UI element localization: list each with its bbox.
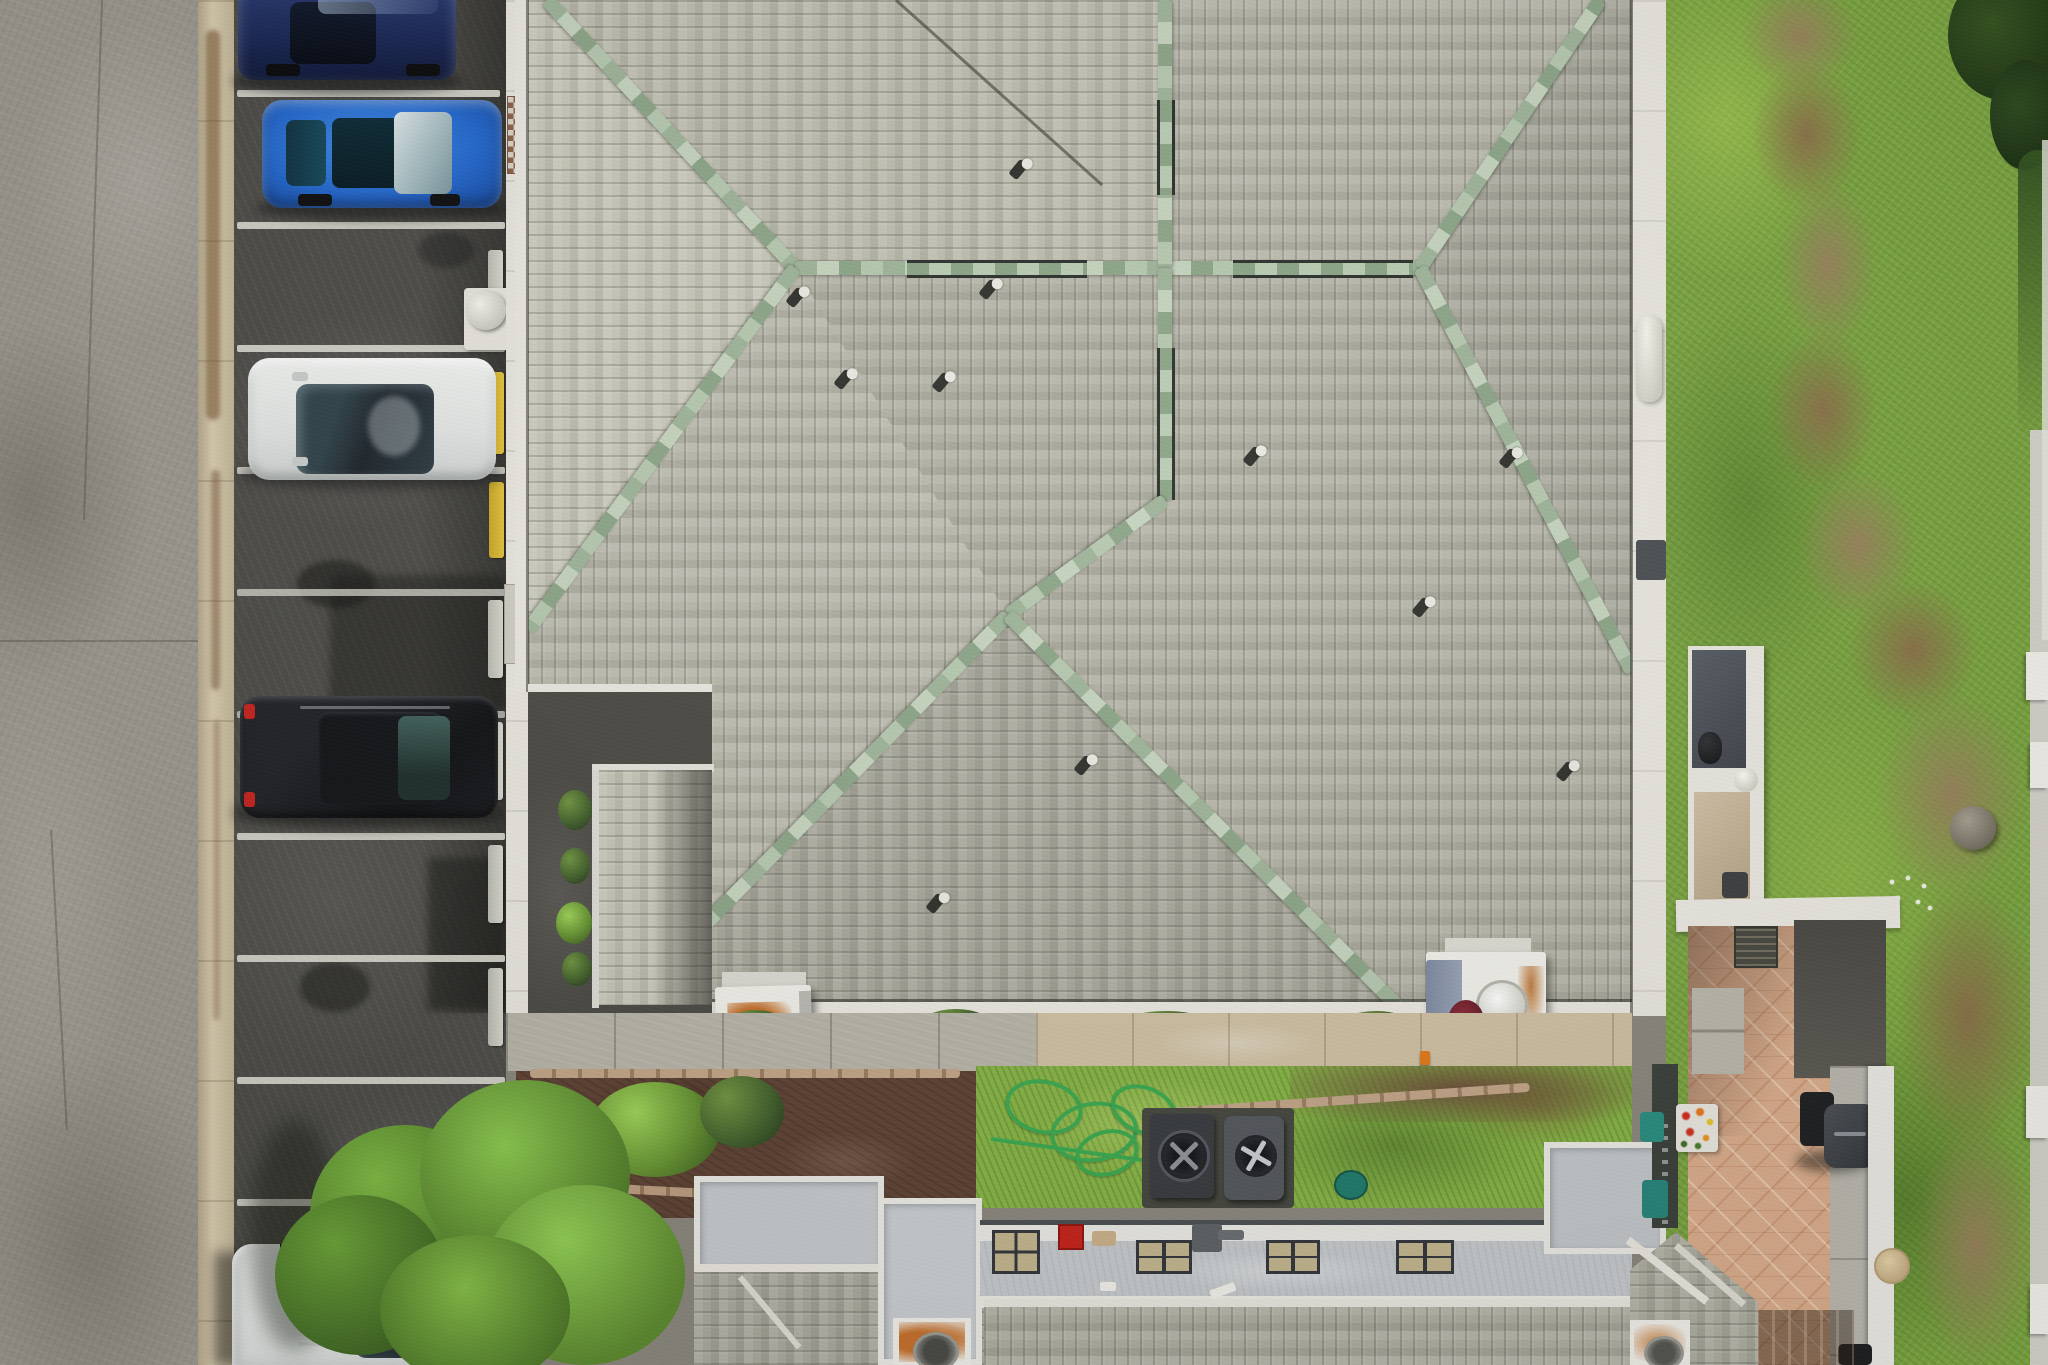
shrub — [560, 848, 590, 884]
car-windshield — [394, 112, 452, 194]
trash-bag — [1698, 732, 1722, 764]
dirt-path — [1778, 180, 1878, 350]
ridge-cap-dark-segment — [1233, 260, 1413, 278]
wheel-stop-yellow — [489, 482, 504, 558]
balcony-grill — [1722, 872, 1748, 898]
curb-stain — [211, 470, 220, 690]
dirt-path — [1768, 330, 1878, 490]
patio-railing — [1868, 1066, 1894, 1365]
car-white — [248, 358, 496, 480]
balcony-block — [1688, 646, 1764, 906]
neighbor-ledge — [2026, 1086, 2048, 1138]
asphalt-stain — [300, 962, 370, 1012]
tree-canopy — [270, 1075, 700, 1365]
shaded-wall-band — [1794, 920, 1886, 1078]
car-mirror — [292, 372, 308, 381]
grill-handle — [1834, 1132, 1866, 1136]
neighbor-trim — [2042, 140, 2048, 640]
tan-roof-vent — [1092, 1231, 1116, 1246]
skylight — [1136, 1240, 1192, 1274]
red-rooftop-box — [1058, 1224, 1084, 1250]
ridge-cap-dark-segment — [1157, 100, 1175, 195]
wing-roof-shadow — [652, 770, 712, 1005]
vertical-ridge-top — [1158, 0, 1172, 268]
car-black — [240, 696, 498, 818]
pitched-roof-ridge-board — [984, 1299, 1632, 1307]
left-gutter-line — [526, 0, 529, 692]
car-wheel — [406, 64, 440, 76]
garden-bush — [700, 1076, 784, 1148]
pitched-roof-bottom — [984, 1306, 1632, 1365]
car-taillight — [244, 792, 255, 807]
skylight — [992, 1230, 1040, 1274]
neighbor-ledge — [2030, 742, 2048, 788]
car-wheel — [298, 194, 332, 206]
bollard — [466, 290, 506, 330]
sidewalk — [506, 1013, 1036, 1071]
car-windshield — [398, 716, 450, 800]
drain-grate — [1734, 926, 1778, 968]
pavement-seam — [0, 640, 198, 642]
right-gutter-line — [1630, 0, 1633, 1016]
dirt-patch — [1898, 880, 2038, 1150]
curb-stain — [206, 30, 220, 420]
neighbor-ledge — [2030, 1284, 2048, 1334]
ac-fan — [1158, 1130, 1210, 1182]
teal-bin — [1642, 1180, 1668, 1218]
car-taillight — [244, 704, 255, 719]
dirt-patch — [1878, 690, 2028, 900]
car-navy — [238, 0, 456, 80]
shrub — [556, 902, 592, 944]
aerial-photo-stage — [0, 0, 2048, 1365]
concrete-slabs — [1692, 988, 1744, 1074]
stall-line — [237, 222, 505, 229]
dirt-patch — [1916, 1120, 2036, 1365]
asphalt-stain — [418, 232, 474, 268]
wing-fascia-left — [592, 770, 599, 1008]
roof-duct-arm — [1218, 1230, 1244, 1240]
curb-stain — [213, 720, 220, 1020]
balcony-pillar — [1734, 768, 1758, 792]
balcony-opening-tan — [1694, 792, 1750, 900]
main-ridge — [795, 261, 1420, 275]
wheel-stop — [488, 600, 503, 678]
statue — [1636, 316, 1662, 402]
chimney-bottom — [893, 1318, 971, 1365]
neighbor-ledge — [2026, 652, 2048, 700]
flower-planter — [1676, 1104, 1718, 1152]
wheel-stop — [488, 845, 503, 923]
stall-line — [237, 955, 505, 962]
wheel-stop — [488, 968, 503, 1046]
car-roof-glint — [300, 706, 450, 709]
tan-walkway — [1036, 1013, 1632, 1073]
chimney-flue — [1644, 1336, 1684, 1365]
concrete-road-strip — [0, 0, 200, 1365]
round-table — [1874, 1248, 1910, 1284]
asphalt-stain — [297, 560, 375, 608]
car-wheel — [266, 64, 300, 76]
flat-roof-section — [694, 1176, 884, 1272]
railing-shadow — [1756, 1310, 1854, 1365]
car-sunroof — [332, 118, 400, 188]
vertical-ridge-mid — [1158, 268, 1172, 500]
ac-unit — [1224, 1116, 1284, 1200]
white-roof-debris — [1100, 1282, 1116, 1291]
right-walkway-strip — [1632, 0, 1666, 1016]
balcony-opening — [1692, 650, 1746, 768]
notch-eave-fascia — [528, 684, 712, 692]
chimney-corner — [1630, 1320, 1690, 1365]
ridge-cap-dark-segment — [907, 260, 1087, 278]
utility-box — [1636, 540, 1666, 580]
car-blue — [262, 100, 502, 208]
car-window-reflection — [368, 396, 420, 456]
shrub — [558, 790, 592, 830]
ridge-cap-dark-segment — [1157, 348, 1175, 500]
ac-fan — [1232, 1132, 1280, 1180]
orange-cone — [1420, 1051, 1430, 1065]
skylight — [1396, 1240, 1454, 1274]
chimney-flue — [913, 1332, 959, 1365]
rock — [1950, 806, 1996, 850]
car-mirror — [292, 457, 308, 466]
teal-bin — [1640, 1112, 1664, 1142]
skylight — [1266, 1240, 1320, 1274]
car-rear-window — [286, 120, 326, 186]
shrub — [562, 952, 592, 986]
stall-line — [237, 833, 505, 840]
ac-unit — [1150, 1114, 1214, 1198]
stall-line — [237, 589, 505, 596]
car-wheel — [430, 194, 460, 206]
hose-reel — [1334, 1170, 1368, 1200]
car-roof-reflection — [318, 0, 438, 14]
